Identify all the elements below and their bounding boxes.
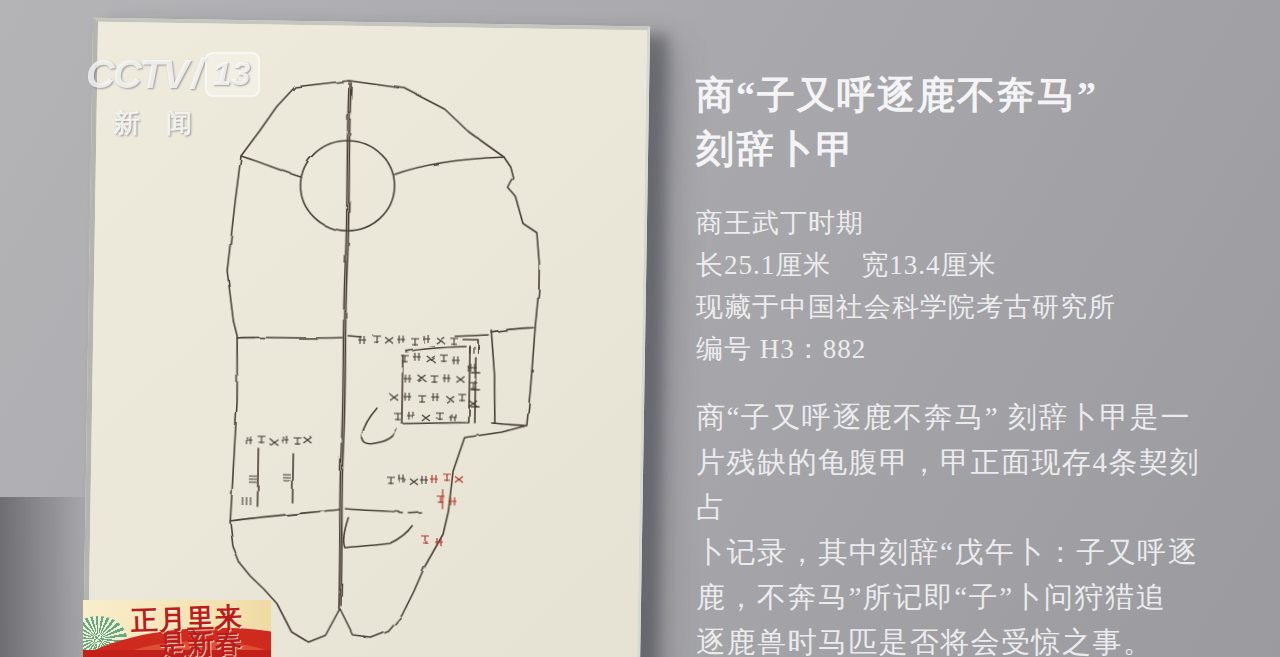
banner-text-line2: 是新春	[158, 625, 243, 657]
artifact-collection: 现藏于中国社会科学院考古研究所	[696, 286, 1226, 328]
artifact-label-panel: 商“子又呼逐鹿不奔马” 刻辞卜甲 商王武丁时期 长25.1厘米宽13.4厘米 现…	[696, 68, 1226, 657]
description-line: 商“子又呼逐鹿不奔马” 刻辞卜甲是一	[696, 395, 1226, 440]
cctv-wordmark: CCTV	[86, 52, 187, 97]
inscription-cluster-dark	[242, 333, 478, 509]
artifact-description: 商“子又呼逐鹿不奔马” 刻辞卜甲是一 片残缺的龟腹甲，甲正面现存4条契刻占 卜记…	[696, 395, 1226, 657]
description-line: 鹿，不奔马”所记即“子”卜问狩猎追	[696, 575, 1226, 620]
artifact-title-line2: 刻辞卜甲	[696, 122, 1226, 176]
description-line: 卜记录，其中刻辞“戊午卜：子又呼逐	[696, 530, 1226, 575]
central-seam-line	[338, 83, 349, 609]
artifact-title-line1: 商“子又呼逐鹿不奔马”	[696, 68, 1226, 122]
cctv-logo: CCTV / 13 新闻	[86, 50, 260, 141]
artifact-dimensions: 长25.1厘米宽13.4厘米	[696, 244, 1226, 286]
channel-subtitle: 新闻	[114, 106, 260, 141]
artifact-catalog-number: 编号 H3：882	[696, 328, 1226, 370]
tv-screenshot: { "broadcast": { "logo": { "channel": "C…	[0, 0, 1280, 657]
artifact-title: 商“子又呼逐鹿不奔马” 刻辞卜甲	[696, 68, 1226, 176]
description-line: 逐鹿兽时马匹是否将会受惊之事。	[696, 620, 1226, 657]
plastron-outline	[221, 79, 542, 646]
festival-banner: 正月里来 是新春	[83, 600, 271, 657]
artifact-width: 宽13.4厘米	[861, 250, 996, 280]
artifact-details: 商王武丁时期 长25.1厘米宽13.4厘米 现藏于中国社会科学院考古研究所 编号…	[696, 202, 1226, 370]
logo-slash: /	[191, 50, 203, 98]
artifact-length: 长25.1厘米	[696, 250, 831, 280]
channel-number-badge: 13	[205, 52, 261, 97]
wall-shadow	[0, 497, 95, 657]
artifact-era: 商王武丁时期	[696, 202, 1226, 244]
description-line: 片残缺的龟腹甲，甲正面现存4条契刻占	[696, 440, 1226, 530]
